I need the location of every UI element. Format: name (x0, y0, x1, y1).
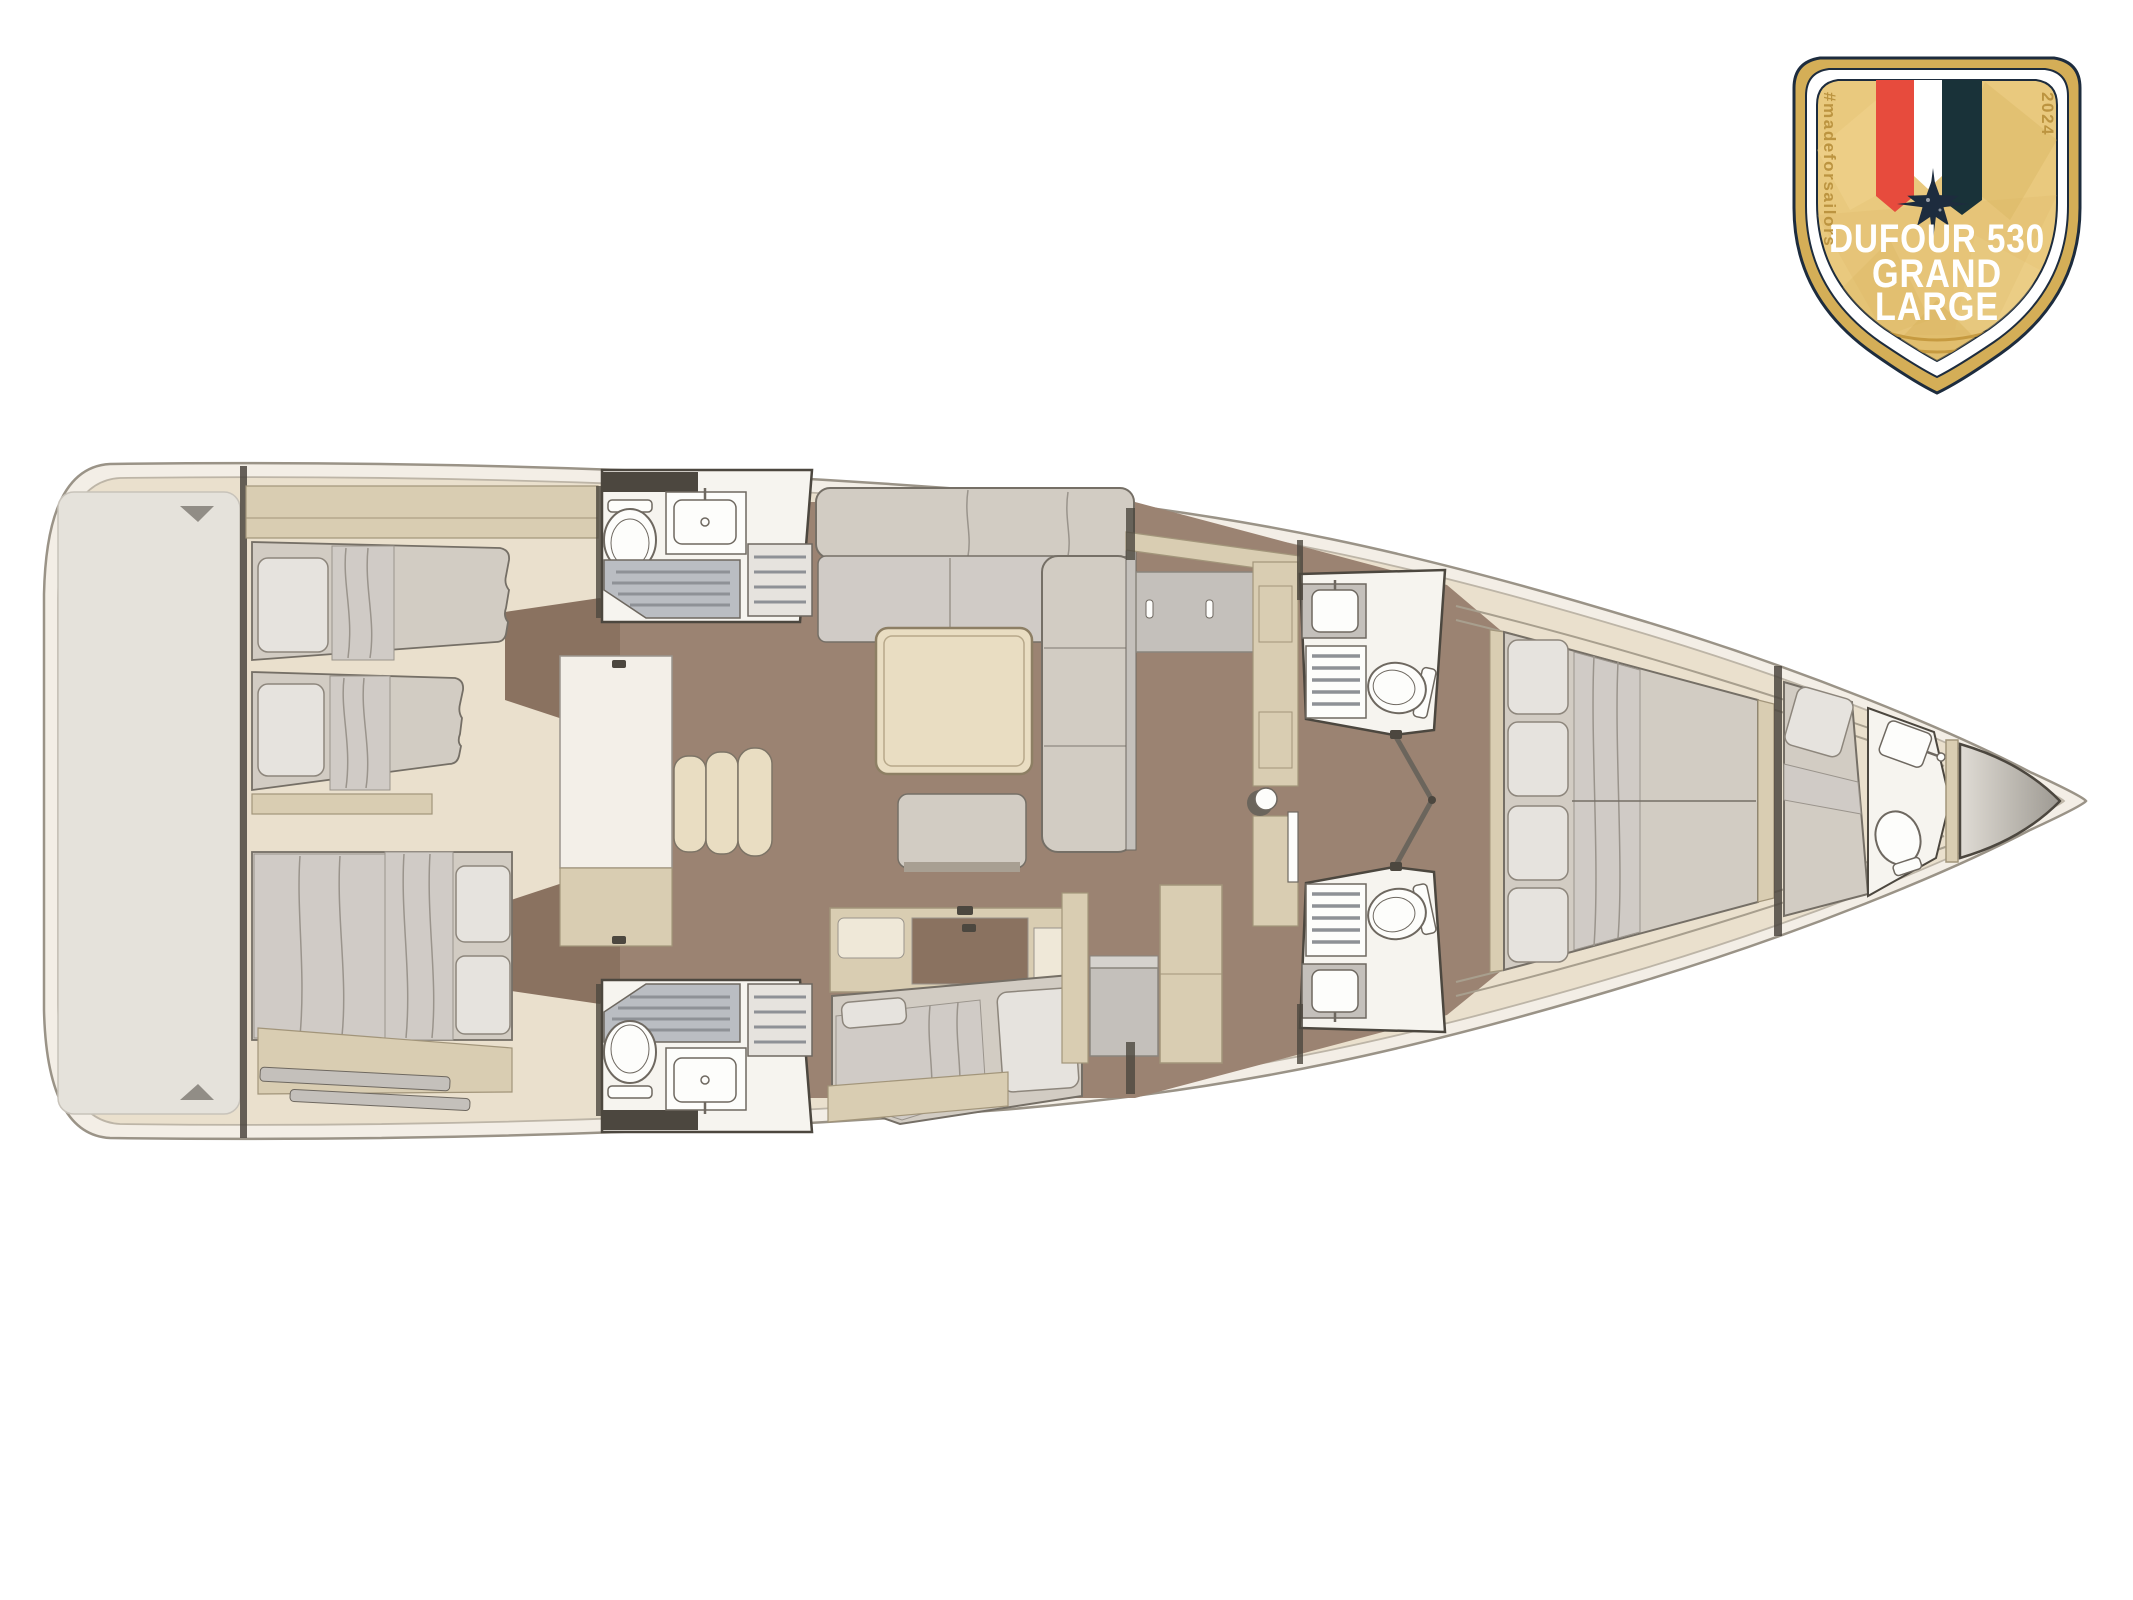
toilet (604, 1021, 656, 1083)
wall-aftcabin-port (596, 486, 603, 618)
sink-basin (1312, 970, 1358, 1012)
companionway-base (560, 868, 672, 946)
hatch-fitting-1 (612, 660, 626, 668)
wardrobe-handle-2 (1206, 600, 1213, 618)
owner-pillow-1 (1508, 640, 1568, 714)
hatch-fitting-2 (612, 936, 626, 944)
aft-cabin-stbd (252, 852, 512, 1111)
toilet-tank (608, 1086, 652, 1098)
badge-hashtag-vertical: #madeforsailors (1820, 92, 1839, 247)
aft-deck (58, 466, 247, 1138)
wall-salon-fwd-port (1126, 508, 1135, 560)
double-bed-blanket-band (385, 852, 453, 1040)
wardrobe-handle-1 (1146, 600, 1153, 618)
mast-post (1255, 788, 1277, 810)
owner-pillow-3 (1508, 806, 1568, 880)
door-hinge-port (1390, 730, 1402, 739)
nav-divider (1062, 893, 1088, 1063)
wall-galley-head-port (1297, 540, 1303, 600)
berth-1-pillow (258, 558, 328, 652)
shower-bench-grating (748, 544, 812, 616)
aft-port-shelf (252, 794, 432, 814)
double-bed-pillow-1 (456, 866, 510, 942)
sink-drain (701, 518, 709, 526)
step-3 (738, 748, 772, 856)
latch-fitting-1 (957, 906, 973, 915)
salon-bench (898, 794, 1026, 868)
sink-drain (701, 1076, 709, 1084)
head-aft-stbd (602, 980, 812, 1132)
ribbon-white-stripe (1914, 80, 1942, 189)
sofa-back-cushions (816, 488, 1134, 558)
settee-pillow-1 (841, 997, 907, 1028)
nav-console (1090, 968, 1158, 1056)
nav-console-top (1090, 956, 1158, 968)
page: DUFOUR 530 GRAND LARGE #madeforsailors 2… (0, 0, 2133, 1600)
counter-column-port (1253, 562, 1298, 786)
badge-title-line3: LARGE (1875, 285, 1999, 329)
transom-platform (58, 492, 240, 1114)
head-cabinet-dark (602, 472, 698, 492)
head-cabinet-dark (602, 1110, 698, 1130)
star-highlight-1 (1926, 198, 1930, 202)
backrest-panel-cream-1 (838, 918, 904, 958)
yacht-floorplan-canvas: DUFOUR 530 GRAND LARGE #madeforsailors 2… (0, 0, 2133, 1600)
step-2 (706, 752, 738, 854)
latch-fitting-2 (962, 924, 976, 932)
bed-foot-step (1758, 700, 1774, 902)
ribbon-red-stripe (1876, 80, 1914, 212)
salon-bulkhead-strip (1126, 545, 1136, 850)
headboard-strip (1490, 630, 1504, 972)
transom-bulkhead (240, 466, 247, 1138)
berth-2-pillow (258, 684, 324, 776)
engine-box (560, 656, 672, 868)
badge: DUFOUR 530 GRAND LARGE #madeforsailors 2… (1794, 58, 2080, 393)
sink-basin (1312, 590, 1358, 632)
door-vertex (1428, 796, 1436, 804)
hull-locker-band (246, 486, 598, 538)
berth-1-blanket (332, 546, 394, 660)
double-bed-duvet (254, 854, 385, 1038)
wardrobe-cabinet-top (1136, 572, 1254, 652)
step-1 (674, 756, 706, 852)
berth-2-blanket (330, 676, 390, 790)
door-leaf (1288, 812, 1298, 882)
forward-bulkhead (1774, 666, 1782, 936)
wall-salon-fwd-stbd (1126, 1042, 1135, 1094)
bow-section (1774, 666, 2060, 936)
wall-galley-head-stbd (1297, 1004, 1303, 1064)
wall-aftcabin-stbd (596, 984, 603, 1116)
owner-pillow-4 (1508, 888, 1568, 962)
shower-bench-grating (748, 984, 812, 1056)
owner-pillow-2 (1508, 722, 1568, 796)
head-fwd-port (1300, 570, 1445, 735)
salon-table (876, 628, 1032, 774)
star-highlight-2 (1939, 209, 1942, 212)
head-aft-port (602, 470, 812, 622)
head-fwd-stbd (1300, 867, 1445, 1032)
badge-year-vertical: 2024 (2038, 92, 2057, 136)
chain-locker-partition (1946, 740, 1958, 862)
salon-bench-base (904, 862, 1020, 872)
ribbon-teal-stripe (1942, 80, 1982, 215)
double-bed-pillow-2 (456, 956, 510, 1034)
door-hinge-stbd (1390, 862, 1402, 871)
sofa-chaise (1042, 556, 1134, 852)
